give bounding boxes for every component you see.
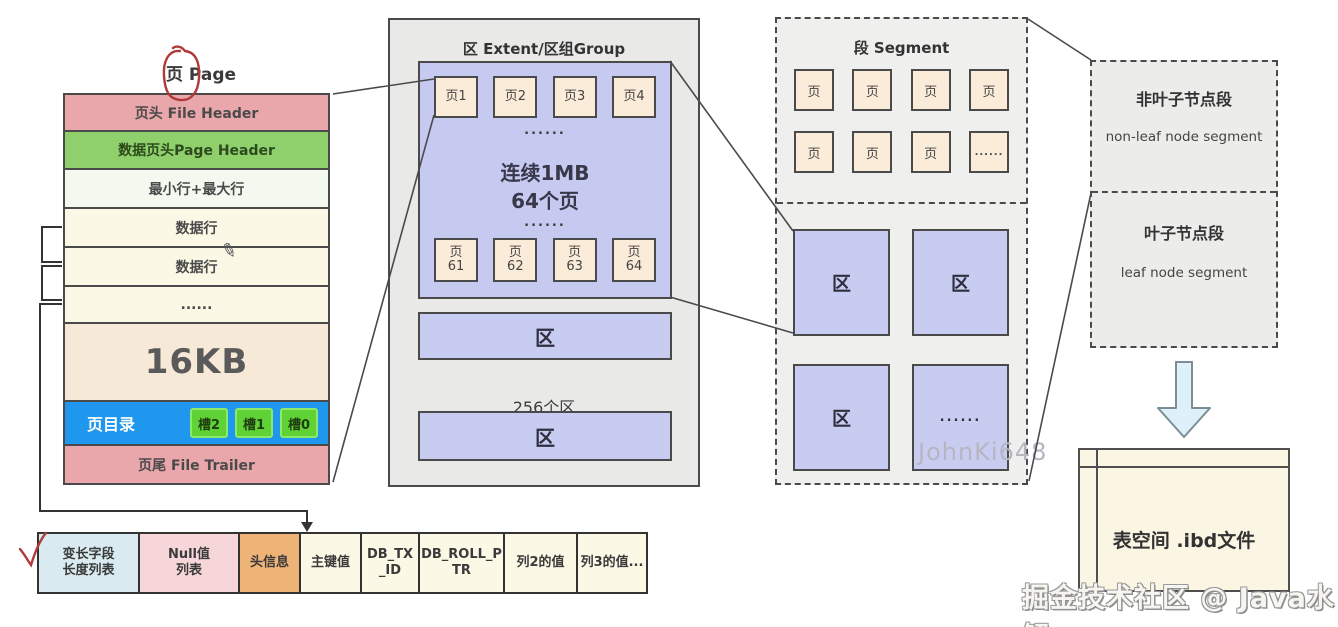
segment-page-box: 页 bbox=[911, 69, 951, 111]
node-segments-panel: 非叶子节点段 non-leaf node segment 叶子节点段 leaf … bbox=[1090, 60, 1278, 348]
page-box-64: 页 64 bbox=[612, 238, 656, 282]
segment-page-box: 页 bbox=[911, 131, 951, 173]
page-box-3: 页3 bbox=[553, 76, 597, 118]
extent-bar-2: 区 bbox=[418, 411, 672, 461]
extent-panel: 区 Extent/区组Group 页1 页2 页3 页4 ...... 连续1M… bbox=[388, 18, 700, 487]
segment-page-box: 页 bbox=[794, 131, 834, 173]
page-row-directory: 页目录 槽2 槽1 槽0 bbox=[65, 402, 328, 446]
segment-extent-box-2: 区 bbox=[912, 229, 1009, 336]
non-leaf-title: 非叶子节点段 bbox=[1092, 86, 1276, 110]
tablespace-header-line bbox=[1080, 466, 1288, 468]
slot-2: 槽2 bbox=[190, 408, 228, 438]
tablespace-side-line bbox=[1096, 450, 1098, 590]
ellipsis: ...... bbox=[420, 215, 670, 230]
record-strip: 变长字段 长度列表 Null值 列表 头信息 主键值 DB_TX _ID DB_… bbox=[37, 532, 648, 594]
extent-pages-bottom: 页 61 页 62 页 63 页 64 bbox=[420, 238, 670, 282]
extent-size-label: 连续1MB bbox=[420, 157, 670, 186]
record-cell-rollptr: DB_ROLL_P TR bbox=[418, 532, 505, 594]
slot-list: 槽2 槽1 槽0 bbox=[190, 408, 318, 438]
record-cell-col2: 列2的值 bbox=[503, 532, 578, 594]
page-box-63: 页 63 bbox=[553, 238, 597, 282]
extent-pages-top: 页1 页2 页3 页4 bbox=[420, 76, 670, 118]
record-cell-varlen: 变长字段 长度列表 bbox=[37, 532, 140, 594]
extent-title: 区 Extent/区组Group bbox=[390, 38, 698, 59]
page-row-data-1: 数据行 bbox=[65, 209, 328, 248]
segment-page-box: 页 bbox=[852, 131, 892, 173]
non-leaf-node-segment: 非叶子节点段 non-leaf node segment bbox=[1092, 62, 1276, 193]
page-directory-label: 页目录 bbox=[87, 411, 135, 435]
segment-extent-box-1: 区 bbox=[793, 229, 890, 336]
slot-1: 槽1 bbox=[235, 408, 273, 438]
ellipsis: ...... bbox=[420, 123, 670, 138]
extent-pages-count: 64个页 bbox=[420, 185, 670, 214]
segment-page-box: 页 bbox=[969, 69, 1009, 111]
segment-page-box: 页 bbox=[852, 69, 892, 111]
page-box-62: 页 62 bbox=[493, 238, 537, 282]
segment-pages-row-1: 页 页 页 页 bbox=[777, 69, 1026, 111]
extent-inner-box: 页1 页2 页3 页4 ...... 连续1MB 64个页 ...... 页 6… bbox=[418, 61, 672, 299]
page-row-data-2: 数据行 bbox=[65, 248, 328, 287]
page-row-ellipsis: ...... bbox=[65, 287, 328, 324]
page-row-size: 16KB bbox=[65, 324, 328, 402]
non-leaf-subtitle: non-leaf node segment bbox=[1092, 129, 1276, 145]
segment-pages-section: 段 Segment 页 页 页 页 页 页 页 ...... bbox=[777, 19, 1026, 204]
record-cell-null: Null值 列表 bbox=[138, 532, 240, 594]
segment-page-ellipsis: ...... bbox=[969, 131, 1009, 173]
watermark-johnki: JohnKi648 bbox=[918, 438, 1047, 466]
leaf-title: 叶子节点段 bbox=[1092, 220, 1276, 244]
page-box-1: 页1 bbox=[434, 76, 478, 118]
page-box-4: 页4 bbox=[612, 76, 656, 118]
tablespace-label: 表空间 .ibd文件 bbox=[1080, 526, 1288, 553]
segment-extent-box-3: 区 bbox=[793, 364, 890, 471]
segment-panel: 段 Segment 页 页 页 页 页 页 页 ...... 区 区 区 ...… bbox=[775, 17, 1028, 485]
page-structure: 页头 File Header 数据页头Page Header 最小行+最大行 数… bbox=[63, 93, 330, 485]
page-row-page-header: 数据页头Page Header bbox=[65, 132, 328, 170]
watermark-juejin: 掘金技术社区 @ Java水解 bbox=[1022, 576, 1338, 627]
leaf-subtitle: leaf node segment bbox=[1092, 265, 1276, 281]
page-row-file-trailer: 页尾 File Trailer bbox=[65, 446, 328, 483]
record-cell-txid: DB_TX _ID bbox=[360, 532, 420, 594]
down-arrow-icon bbox=[1158, 362, 1210, 437]
innodb-storage-diagram: 页 Page 页头 File Header 数据页头Page Header 最小… bbox=[0, 0, 1338, 627]
page-title: 页 Page bbox=[166, 60, 236, 85]
segment-title: 段 Segment bbox=[777, 37, 1026, 58]
record-cell-pk: 主键值 bbox=[299, 532, 362, 594]
segment-page-box: 页 bbox=[794, 69, 834, 111]
segment-pages-row-2: 页 页 页 ...... bbox=[777, 131, 1026, 173]
page-box-61: 页 61 bbox=[434, 238, 478, 282]
record-cell-col3: 列3的值... bbox=[576, 532, 648, 594]
page-box-2: 页2 bbox=[493, 76, 537, 118]
record-pointer-arrowhead bbox=[301, 522, 313, 532]
page-row-file-header: 页头 File Header bbox=[65, 95, 328, 132]
tablespace-box: 表空间 .ibd文件 bbox=[1078, 448, 1290, 592]
record-cell-header: 头信息 bbox=[238, 532, 301, 594]
page-row-min-max: 最小行+最大行 bbox=[65, 170, 328, 209]
extent-bar-1: 区 bbox=[418, 312, 672, 360]
slot-0: 槽0 bbox=[280, 408, 318, 438]
